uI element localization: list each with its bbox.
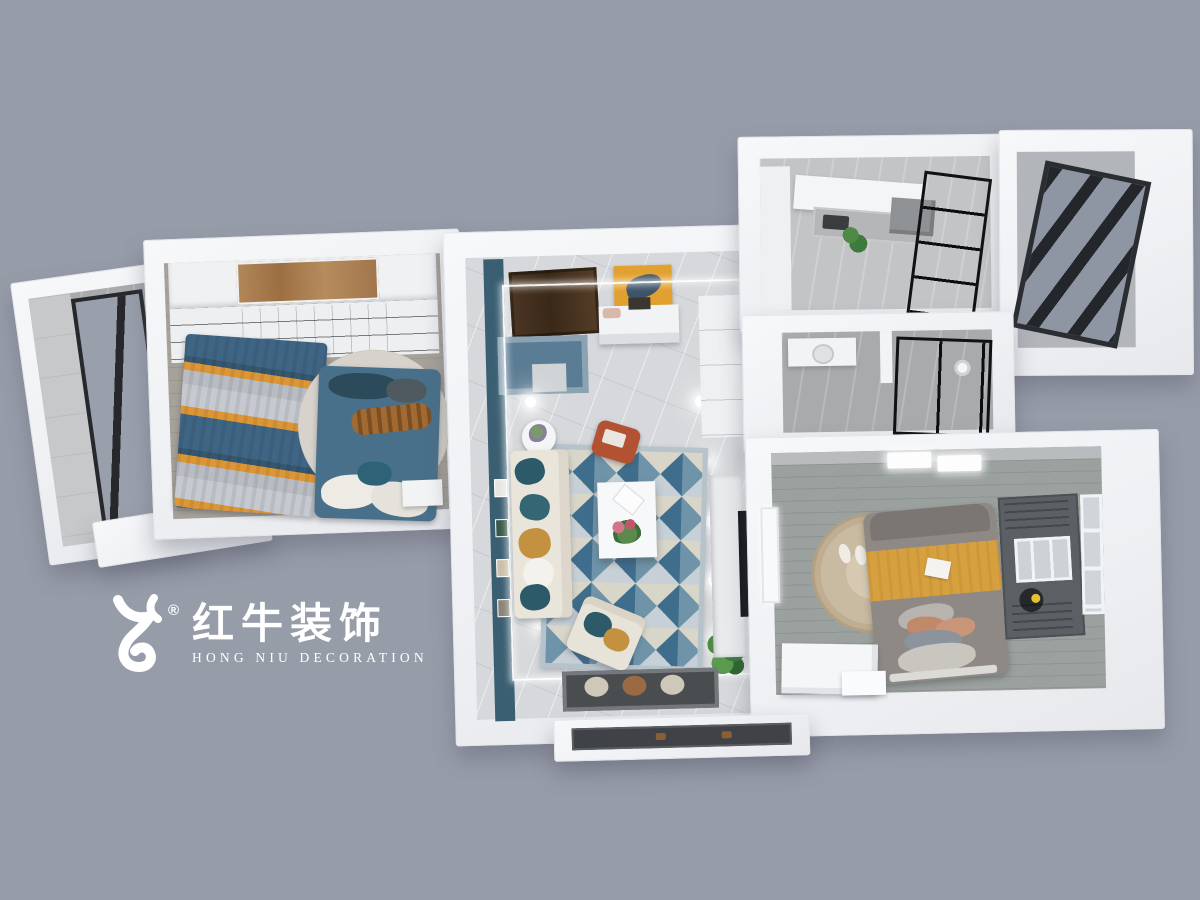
kitchen-tall-units: [760, 166, 792, 310]
nook-window: [1014, 536, 1072, 583]
shower-glass: [893, 336, 993, 437]
entrance-mat-dot-1: [656, 733, 666, 740]
sofa: [510, 449, 572, 618]
doormat-stone-1: [584, 676, 609, 697]
wall-frame-4: [497, 599, 510, 617]
flowers: [608, 515, 643, 544]
side-table-plant: [529, 424, 550, 445]
scene-canvas: ® 红牛装饰 HONG NIU DECORATION: [0, 0, 1200, 900]
sofa-pillow-teal-3: [519, 582, 552, 612]
table-book: [612, 484, 645, 516]
doormat-stone-2: [660, 674, 685, 695]
bed2-mustard-runner: [866, 540, 1002, 602]
room-master-bedroom: [143, 229, 470, 540]
room-balcony-right: [999, 129, 1194, 376]
vanity: [788, 338, 856, 367]
sofa-pillow-mustard: [516, 526, 553, 561]
corner-cabinet-step: [842, 671, 886, 696]
wall-frame-3: [496, 559, 509, 577]
sofa-pillow-teal-1: [512, 455, 547, 487]
wardrobe-sliding-doors: [236, 257, 379, 304]
bed-blue-cushion-gray: [386, 378, 427, 403]
bedroom2-sliding-door: [760, 507, 780, 603]
sofa-pillow-teal-2: [518, 492, 552, 522]
kitchen-plant: [839, 221, 869, 255]
ottoman-tray: [601, 429, 626, 449]
doormat-stone-wood: [622, 675, 647, 696]
entrance-mat: [572, 723, 793, 751]
woven-throw: [350, 402, 432, 436]
floorplan: [0, 0, 1200, 900]
nook-tray-decor: [1031, 594, 1040, 603]
doormat-recessed: [562, 668, 719, 712]
registered-mark: ®: [168, 602, 179, 619]
bed2-card: [924, 557, 951, 579]
nook-shelf-bottom: [1012, 602, 1073, 633]
vanity-sink: [812, 344, 834, 364]
entrance-step: [553, 713, 810, 762]
brand-name-en: HONG NIU DECORATION: [192, 650, 428, 666]
brand-name-cn: 红牛装饰: [192, 602, 428, 646]
brand-text-block: 红牛装饰 HONG NIU DECORATION: [192, 602, 428, 666]
ceiling-light-panel-2: [937, 455, 981, 472]
bedside-bench: [402, 479, 443, 506]
nook-shelf-top: [1004, 500, 1070, 534]
desk-nook: [998, 493, 1086, 639]
bedroom2-right-window: [1080, 494, 1105, 614]
bed-2: [863, 502, 1010, 685]
ceiling-light-panel-1: [887, 452, 931, 469]
teal-pillow-small: [357, 461, 392, 486]
brand-watermark: ® 红牛装饰 HONG NIU DECORATION: [110, 594, 430, 678]
slipper-1: [837, 542, 853, 564]
bathroom-divider-wall: [880, 331, 893, 383]
room-bedroom-2: [745, 429, 1165, 738]
room-kitchen: [737, 134, 1011, 333]
coffee-table: [597, 481, 657, 558]
entrance-mat-dot-2: [722, 731, 732, 738]
shower-head: [954, 360, 971, 377]
wall-frame-2: [495, 519, 508, 537]
wall-frame-1: [494, 479, 507, 497]
